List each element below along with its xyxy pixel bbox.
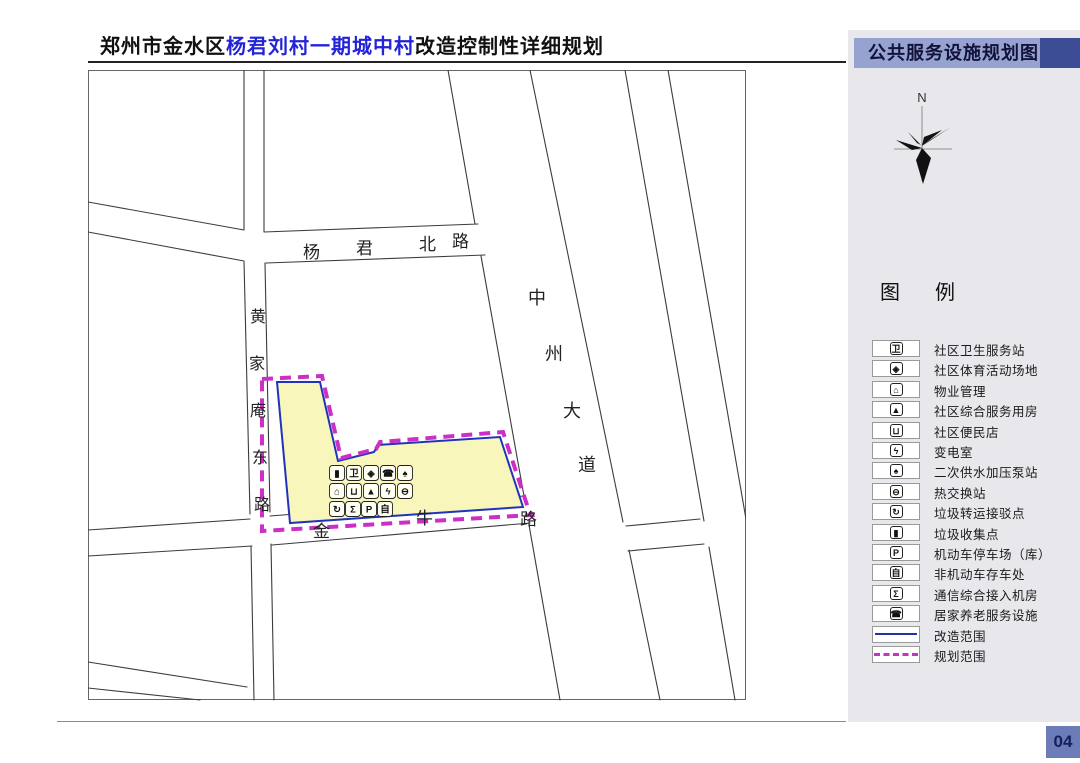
legend-title: 图 例 — [880, 276, 957, 305]
water-pump-icon: ♠ — [890, 464, 903, 477]
svg-text:▲: ▲ — [366, 487, 375, 498]
footer-line — [57, 721, 846, 722]
title-segment: 杨君刘村一期城中村 — [226, 36, 415, 58]
north-arrow-icon: N — [888, 88, 958, 188]
svg-text:自: 自 — [380, 504, 390, 516]
elderly-care-icon: ☎ — [381, 466, 396, 481]
title-underline — [88, 61, 846, 63]
legend-item-heat-exchange: ⊖热交换站 — [872, 481, 1072, 501]
legend-label: 通信综合接入机房 — [934, 585, 1038, 604]
road-label-jinniu-road: 金 — [313, 522, 330, 541]
road-label-huangjiaan-east-road: 家 — [249, 355, 265, 373]
bike-parking-icon: 自 — [378, 502, 393, 517]
svg-text:♠: ♠ — [402, 469, 407, 480]
legend-item-transformer: ϟ变电室 — [872, 440, 1072, 460]
road-label-yangjun-north-road: 路 — [452, 232, 469, 251]
svg-text:⊔: ⊔ — [350, 487, 357, 498]
community-service-legend-symbol: ▲ — [872, 401, 920, 418]
heat-exchange-legend-symbol: ⊖ — [872, 483, 920, 500]
convenience-store-icon: ⊔ — [890, 424, 903, 437]
legend-item-health-station: 卫社区卫生服务站 — [872, 338, 1072, 358]
svg-text:↻: ↻ — [333, 505, 341, 516]
convenience-store-legend-symbol: ⊔ — [872, 422, 920, 439]
legend-label: 热交换站 — [934, 483, 986, 502]
legend-label: 社区体育活动场地 — [934, 360, 1038, 379]
heat-exchange-icon: ⊖ — [398, 484, 413, 499]
legend-item-telecom-room: Σ通信综合接入机房 — [872, 583, 1072, 603]
legend-label: 改造范围 — [934, 626, 986, 645]
sports-ground-legend-symbol: ◈ — [872, 360, 920, 377]
svg-text:☎: ☎ — [382, 469, 394, 480]
svg-text:P: P — [366, 505, 373, 516]
legend-label: 社区便民店 — [934, 422, 999, 441]
telecom-room-legend-symbol: Σ — [872, 585, 920, 602]
legend-item-parking: P机动车停车场（库） — [872, 542, 1072, 562]
planning-boundary-legend-symbol — [872, 646, 920, 663]
elderly-care-icon: ☎ — [890, 607, 903, 620]
bike-parking-icon: 自 — [890, 566, 903, 579]
road-label-jinniu-road: 路 — [520, 510, 537, 529]
legend-item-sports-ground: ◈社区体育活动场地 — [872, 358, 1072, 378]
legend-item-convenience-store: ⊔社区便民店 — [872, 420, 1072, 440]
planning-boundary-line — [874, 653, 918, 656]
transformer-icon: ϟ — [381, 484, 396, 499]
road-label-zhongzhou-avenue: 中 — [528, 288, 546, 308]
health-station-icon: 卫 — [347, 466, 362, 481]
legend-label: 机动车停车场（库） — [934, 544, 1051, 563]
legend-label: 居家养老服务设施 — [934, 605, 1038, 624]
heat-exchange-icon: ⊖ — [890, 485, 903, 498]
panel-title-accent-block — [1040, 38, 1080, 68]
transformer-icon: ϟ — [890, 444, 903, 457]
road-label-huangjiaan-east-road: 庵 — [250, 402, 266, 420]
sports-ground-icon: ◈ — [364, 466, 379, 481]
parking-icon: P — [362, 502, 377, 517]
page-number: 04 — [1054, 732, 1073, 752]
water-pump-legend-symbol: ♠ — [872, 462, 920, 479]
legend-label: 规划范围 — [934, 646, 986, 665]
road-label-yangjun-north-road: 北 — [419, 235, 436, 254]
road-label-jinniu-road: 牛 — [416, 509, 433, 528]
road-label-yangjun-north-road: 君 — [356, 239, 373, 258]
property-mgmt-icon: ⌂ — [890, 383, 903, 396]
legend-label: 变电室 — [934, 442, 973, 461]
planning-map: ▮卫◈☎♠⌂⊔▲ϟ⊖↻ΣP自 杨君北路黄家庵东路中州大道金牛路 — [88, 70, 746, 702]
garbage-collection-legend-symbol: ▮ — [872, 524, 920, 541]
legend-label: 二次供水加压泵站 — [934, 462, 1038, 481]
water-pump-icon: ♠ — [398, 466, 413, 481]
page-title: 郑州市金水区杨君刘村一期城中村改造控制性详细规划 — [100, 30, 604, 56]
garbage-transfer-icon: ↻ — [330, 502, 345, 517]
garbage-collection-icon: ▮ — [330, 466, 345, 481]
elderly-care-legend-symbol: ☎ — [872, 605, 920, 622]
renovation-boundary-legend-symbol — [872, 626, 920, 643]
garbage-transfer-icon: ↻ — [890, 505, 903, 518]
svg-text:▮: ▮ — [334, 469, 339, 480]
legend-label: 垃圾收集点 — [934, 524, 999, 543]
title-segment: 改造控制性详细规划 — [415, 36, 604, 58]
panel-title: 公共服务设施规划图 — [868, 38, 1039, 68]
garbage-collection-icon: ▮ — [890, 526, 903, 539]
property-mgmt-legend-symbol: ⌂ — [872, 381, 920, 398]
health-station-legend-symbol: 卫 — [872, 340, 920, 357]
svg-text:⊖: ⊖ — [401, 487, 409, 498]
parking-legend-symbol: P — [872, 544, 920, 561]
map-frame — [89, 71, 746, 700]
side-panel: 公共服务设施规划图 N 图 例 卫社区卫生服务站◈社区体育活动场地⌂物业管理▲社… — [848, 30, 1080, 722]
page-number-badge: 04 — [1046, 726, 1080, 758]
legend-item-garbage-collection: ▮垃圾收集点 — [872, 522, 1072, 542]
garbage-transfer-legend-symbol: ↻ — [872, 503, 920, 520]
svg-text:Σ: Σ — [350, 505, 356, 516]
transformer-legend-symbol: ϟ — [872, 442, 920, 459]
community-service-icon: ▲ — [890, 403, 903, 416]
road-label-yangjun-north-road: 杨 — [303, 243, 320, 262]
convenience-store-icon: ⊔ — [347, 484, 362, 499]
svg-text:ϟ: ϟ — [385, 487, 390, 498]
legend-label: 社区综合服务用房 — [934, 401, 1038, 420]
community-service-icon: ▲ — [364, 484, 379, 499]
svg-text:◈: ◈ — [366, 469, 375, 480]
panel-title-band: 公共服务设施规划图 — [854, 38, 1080, 68]
health-station-icon: 卫 — [890, 342, 903, 355]
legend-item-bike-parking: 自非机动车存车处 — [872, 562, 1072, 582]
road-label-zhongzhou-avenue: 州 — [545, 344, 563, 364]
property-mgmt-icon: ⌂ — [330, 484, 345, 499]
legend-item-planning-boundary: 规划范围 — [872, 644, 1072, 664]
road-label-huangjiaan-east-road: 东 — [252, 449, 268, 467]
road-label-zhongzhou-avenue: 大 — [563, 401, 581, 421]
bike-parking-legend-symbol: 自 — [872, 564, 920, 581]
renovation-boundary-line — [875, 633, 917, 635]
legend-item-renovation-boundary: 改造范围 — [872, 624, 1072, 644]
telecom-room-icon: Σ — [346, 502, 361, 517]
telecom-room-icon: Σ — [890, 587, 903, 600]
svg-text:⌂: ⌂ — [334, 487, 340, 498]
road-label-huangjiaan-east-road: 黄 — [250, 308, 266, 326]
legend-item-community-service: ▲社区综合服务用房 — [872, 399, 1072, 419]
sports-ground-icon: ◈ — [890, 362, 903, 375]
road-label-zhongzhou-avenue: 道 — [578, 455, 596, 475]
svg-text:卫: 卫 — [349, 469, 359, 480]
legend-item-elderly-care: ☎居家养老服务设施 — [872, 603, 1072, 623]
north-label: N — [917, 90, 926, 105]
road-label-huangjiaan-east-road: 路 — [254, 496, 270, 514]
legend-label: 社区卫生服务站 — [934, 340, 1025, 359]
legend-label: 物业管理 — [934, 381, 986, 400]
legend-label: 垃圾转运接驳点 — [934, 503, 1025, 522]
parking-icon: P — [890, 546, 903, 559]
legend-item-property-mgmt: ⌂物业管理 — [872, 379, 1072, 399]
legend-label: 非机动车存车处 — [934, 564, 1025, 583]
legend-item-garbage-transfer: ↻垃圾转运接驳点 — [872, 501, 1072, 521]
title-segment: 郑州市金水区 — [100, 36, 226, 58]
legend-item-water-pump: ♠二次供水加压泵站 — [872, 460, 1072, 480]
